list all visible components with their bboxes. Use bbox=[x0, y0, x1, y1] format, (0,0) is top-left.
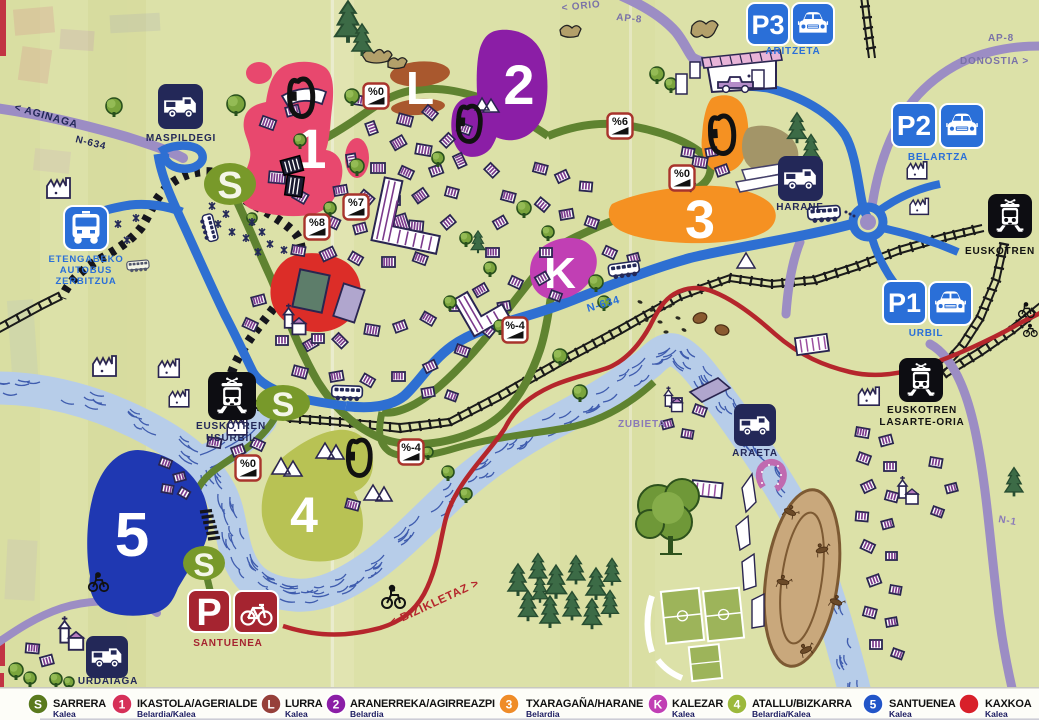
svg-text:ZUBIETA: ZUBIETA bbox=[618, 419, 666, 430]
svg-text:5: 5 bbox=[870, 698, 877, 712]
svg-text:ZERBITZUA: ZERBITZUA bbox=[55, 276, 116, 287]
svg-text:URBIL: URBIL bbox=[909, 328, 944, 339]
svg-text:ARAETA: ARAETA bbox=[732, 448, 778, 459]
svg-text:Belardia/Kalea: Belardia/Kalea bbox=[752, 709, 811, 719]
svg-text:%0: %0 bbox=[368, 86, 384, 98]
svg-text:1: 1 bbox=[119, 698, 126, 712]
svg-text:2: 2 bbox=[333, 698, 340, 712]
svg-text:EUSKOTREN: EUSKOTREN bbox=[196, 421, 266, 432]
svg-text:S: S bbox=[34, 698, 42, 712]
svg-text:%0: %0 bbox=[240, 458, 256, 470]
svg-text:USURBIL: USURBIL bbox=[206, 433, 256, 444]
svg-text:K: K bbox=[654, 698, 663, 712]
svg-text:URDAIAGA: URDAIAGA bbox=[78, 676, 138, 687]
svg-text:2: 2 bbox=[503, 53, 534, 116]
svg-text:4: 4 bbox=[734, 698, 741, 712]
svg-text:Belardia: Belardia bbox=[350, 709, 384, 719]
svg-text:S: S bbox=[217, 165, 242, 207]
svg-text:%-4: %-4 bbox=[505, 320, 525, 332]
svg-text:P1: P1 bbox=[888, 288, 921, 318]
svg-text:%7: %7 bbox=[348, 197, 364, 209]
svg-text:%-4: %-4 bbox=[401, 442, 421, 454]
svg-text:Kalea: Kalea bbox=[285, 709, 308, 719]
svg-text:P2: P2 bbox=[897, 110, 931, 141]
svg-text:4: 4 bbox=[290, 487, 318, 543]
svg-text:AUTOBUS: AUTOBUS bbox=[60, 265, 112, 276]
svg-text:Kalea: Kalea bbox=[672, 709, 695, 719]
svg-text:%6: %6 bbox=[612, 116, 628, 128]
svg-text:P: P bbox=[196, 592, 221, 634]
svg-text:ETENGABEKO: ETENGABEKO bbox=[48, 254, 123, 265]
svg-text:EUSKOTREN: EUSKOTREN bbox=[887, 405, 957, 416]
svg-text:P3: P3 bbox=[751, 10, 784, 40]
svg-text:Kalea: Kalea bbox=[889, 709, 912, 719]
svg-text:L: L bbox=[267, 698, 274, 712]
svg-text:%0: %0 bbox=[674, 168, 690, 180]
svg-text:SANTUENEA: SANTUENEA bbox=[193, 638, 262, 649]
svg-text:Belardia: Belardia bbox=[526, 709, 560, 719]
svg-text:5: 5 bbox=[115, 501, 149, 570]
svg-text:S: S bbox=[272, 386, 295, 424]
svg-text:HARANE: HARANE bbox=[776, 202, 824, 213]
svg-text:AP-8: AP-8 bbox=[988, 33, 1014, 44]
svg-text:Kalea: Kalea bbox=[53, 709, 76, 719]
svg-text:Kalea: Kalea bbox=[985, 709, 1008, 719]
svg-text:ARITZETA: ARITZETA bbox=[765, 46, 820, 57]
svg-text:BELARTZA: BELARTZA bbox=[908, 152, 968, 163]
svg-text:S: S bbox=[193, 547, 214, 583]
svg-text:DONOSTIA >: DONOSTIA > bbox=[960, 56, 1029, 67]
svg-text:Belardia/Kalea: Belardia/Kalea bbox=[137, 709, 196, 719]
svg-text:3: 3 bbox=[506, 698, 513, 712]
svg-text:EUSKOTREN: EUSKOTREN bbox=[965, 246, 1035, 257]
svg-text:%8: %8 bbox=[309, 217, 325, 229]
svg-text:3: 3 bbox=[685, 190, 715, 250]
svg-text:MASPILDEGI: MASPILDEGI bbox=[146, 133, 216, 144]
svg-text:LASARTE-ORIA: LASARTE-ORIA bbox=[879, 417, 964, 428]
